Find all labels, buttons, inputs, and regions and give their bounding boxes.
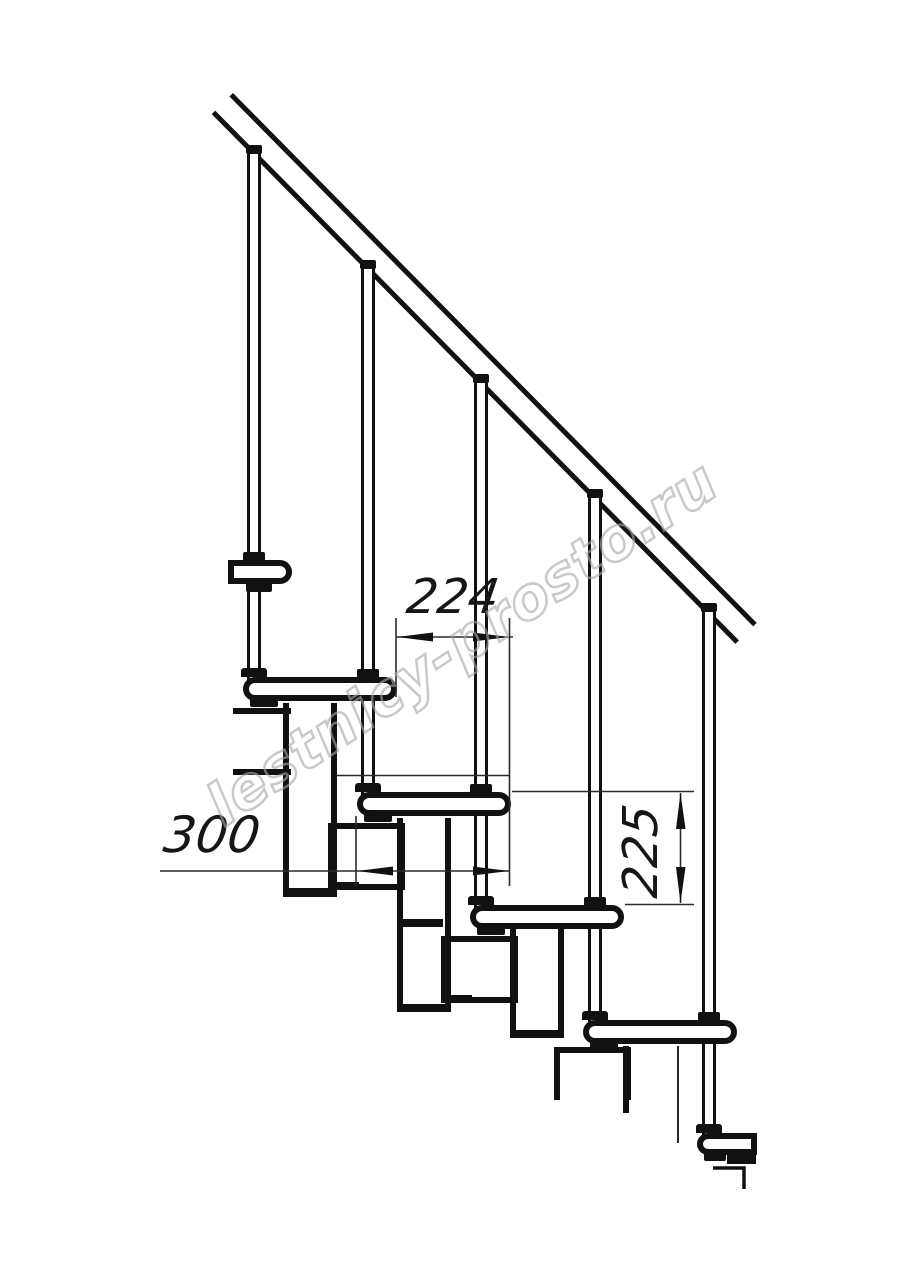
- staircase-drawing: 224 300 225 lestnicy-prosto.ru: [0, 0, 914, 1280]
- break-cut-line: [713, 1168, 744, 1189]
- dimension-label-rise: 225: [617, 802, 665, 900]
